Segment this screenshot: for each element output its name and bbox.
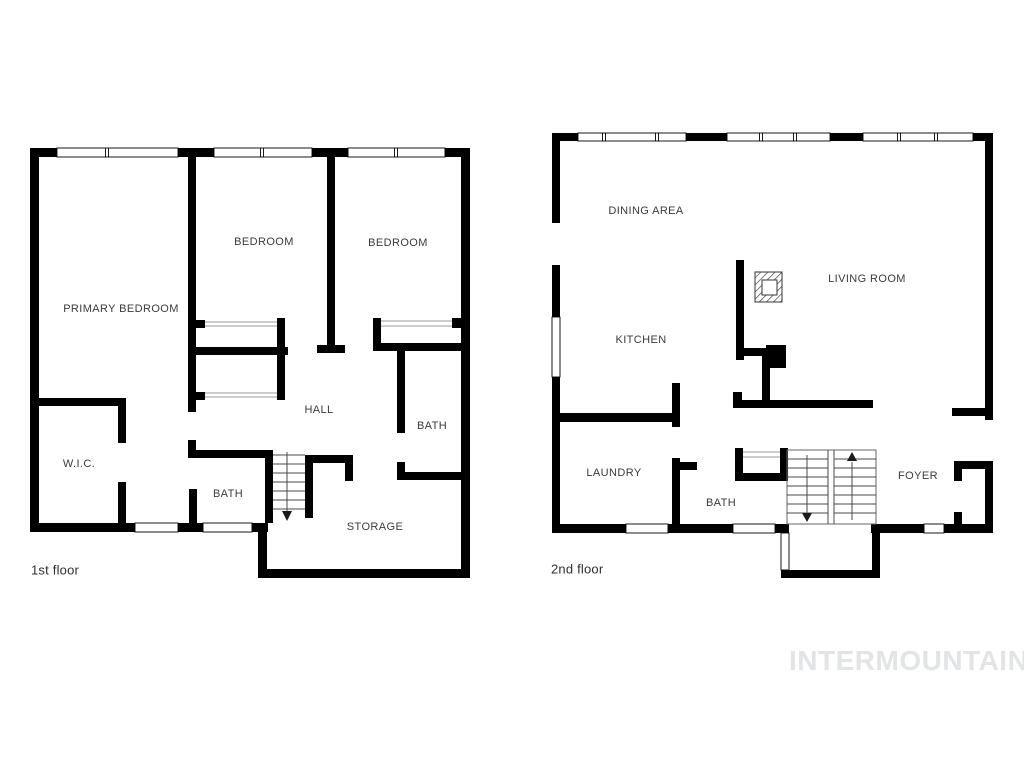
room-label-foyer: FOYER <box>898 470 938 482</box>
fireplace-icon <box>755 272 782 302</box>
second-floor-staircase-icon <box>787 450 876 524</box>
room-label-living-room: LIVING ROOM <box>828 273 906 285</box>
first-floor-walls <box>30 148 470 578</box>
room-label-hall: HALL <box>304 404 333 416</box>
room-label-bath-right: BATH <box>417 420 447 432</box>
second-floor-walls <box>552 133 993 578</box>
stairs-down-arrow-icon <box>282 511 292 521</box>
caption-first-floor: 1st floor <box>31 563 79 578</box>
room-label-bath-2nd: BATH <box>706 497 736 509</box>
second-floor-closet-doors <box>743 452 780 457</box>
room-label-wic: W.I.C. <box>63 458 95 470</box>
first-floor-plan <box>30 148 470 578</box>
second-floor-plan <box>552 133 993 578</box>
room-label-bedroom-middle: BEDROOM <box>234 236 294 248</box>
first-floor-windows <box>57 148 445 532</box>
room-label-kitchen: KITCHEN <box>615 334 666 346</box>
stairs-down-arrow-icon <box>802 513 812 522</box>
room-label-dining-area: DINING AREA <box>608 205 683 217</box>
first-floor-staircase-icon <box>273 452 305 521</box>
room-label-bath-left: BATH <box>213 488 243 500</box>
room-label-laundry: LAUNDRY <box>586 467 641 479</box>
room-label-storage: STORAGE <box>347 521 403 533</box>
caption-second-floor: 2nd floor <box>551 562 603 577</box>
intermountain-watermark: INTERMOUNTAIN <box>789 645 1024 677</box>
room-label-primary-bedroom: PRIMARY BEDROOM <box>63 303 179 315</box>
floor-plan-canvas: PRIMARY BEDROOM BEDROOM BEDROOM HALL BAT… <box>0 0 1024 768</box>
stairs-up-arrow-icon <box>847 452 857 461</box>
room-label-bedroom-right: BEDROOM <box>368 237 428 249</box>
